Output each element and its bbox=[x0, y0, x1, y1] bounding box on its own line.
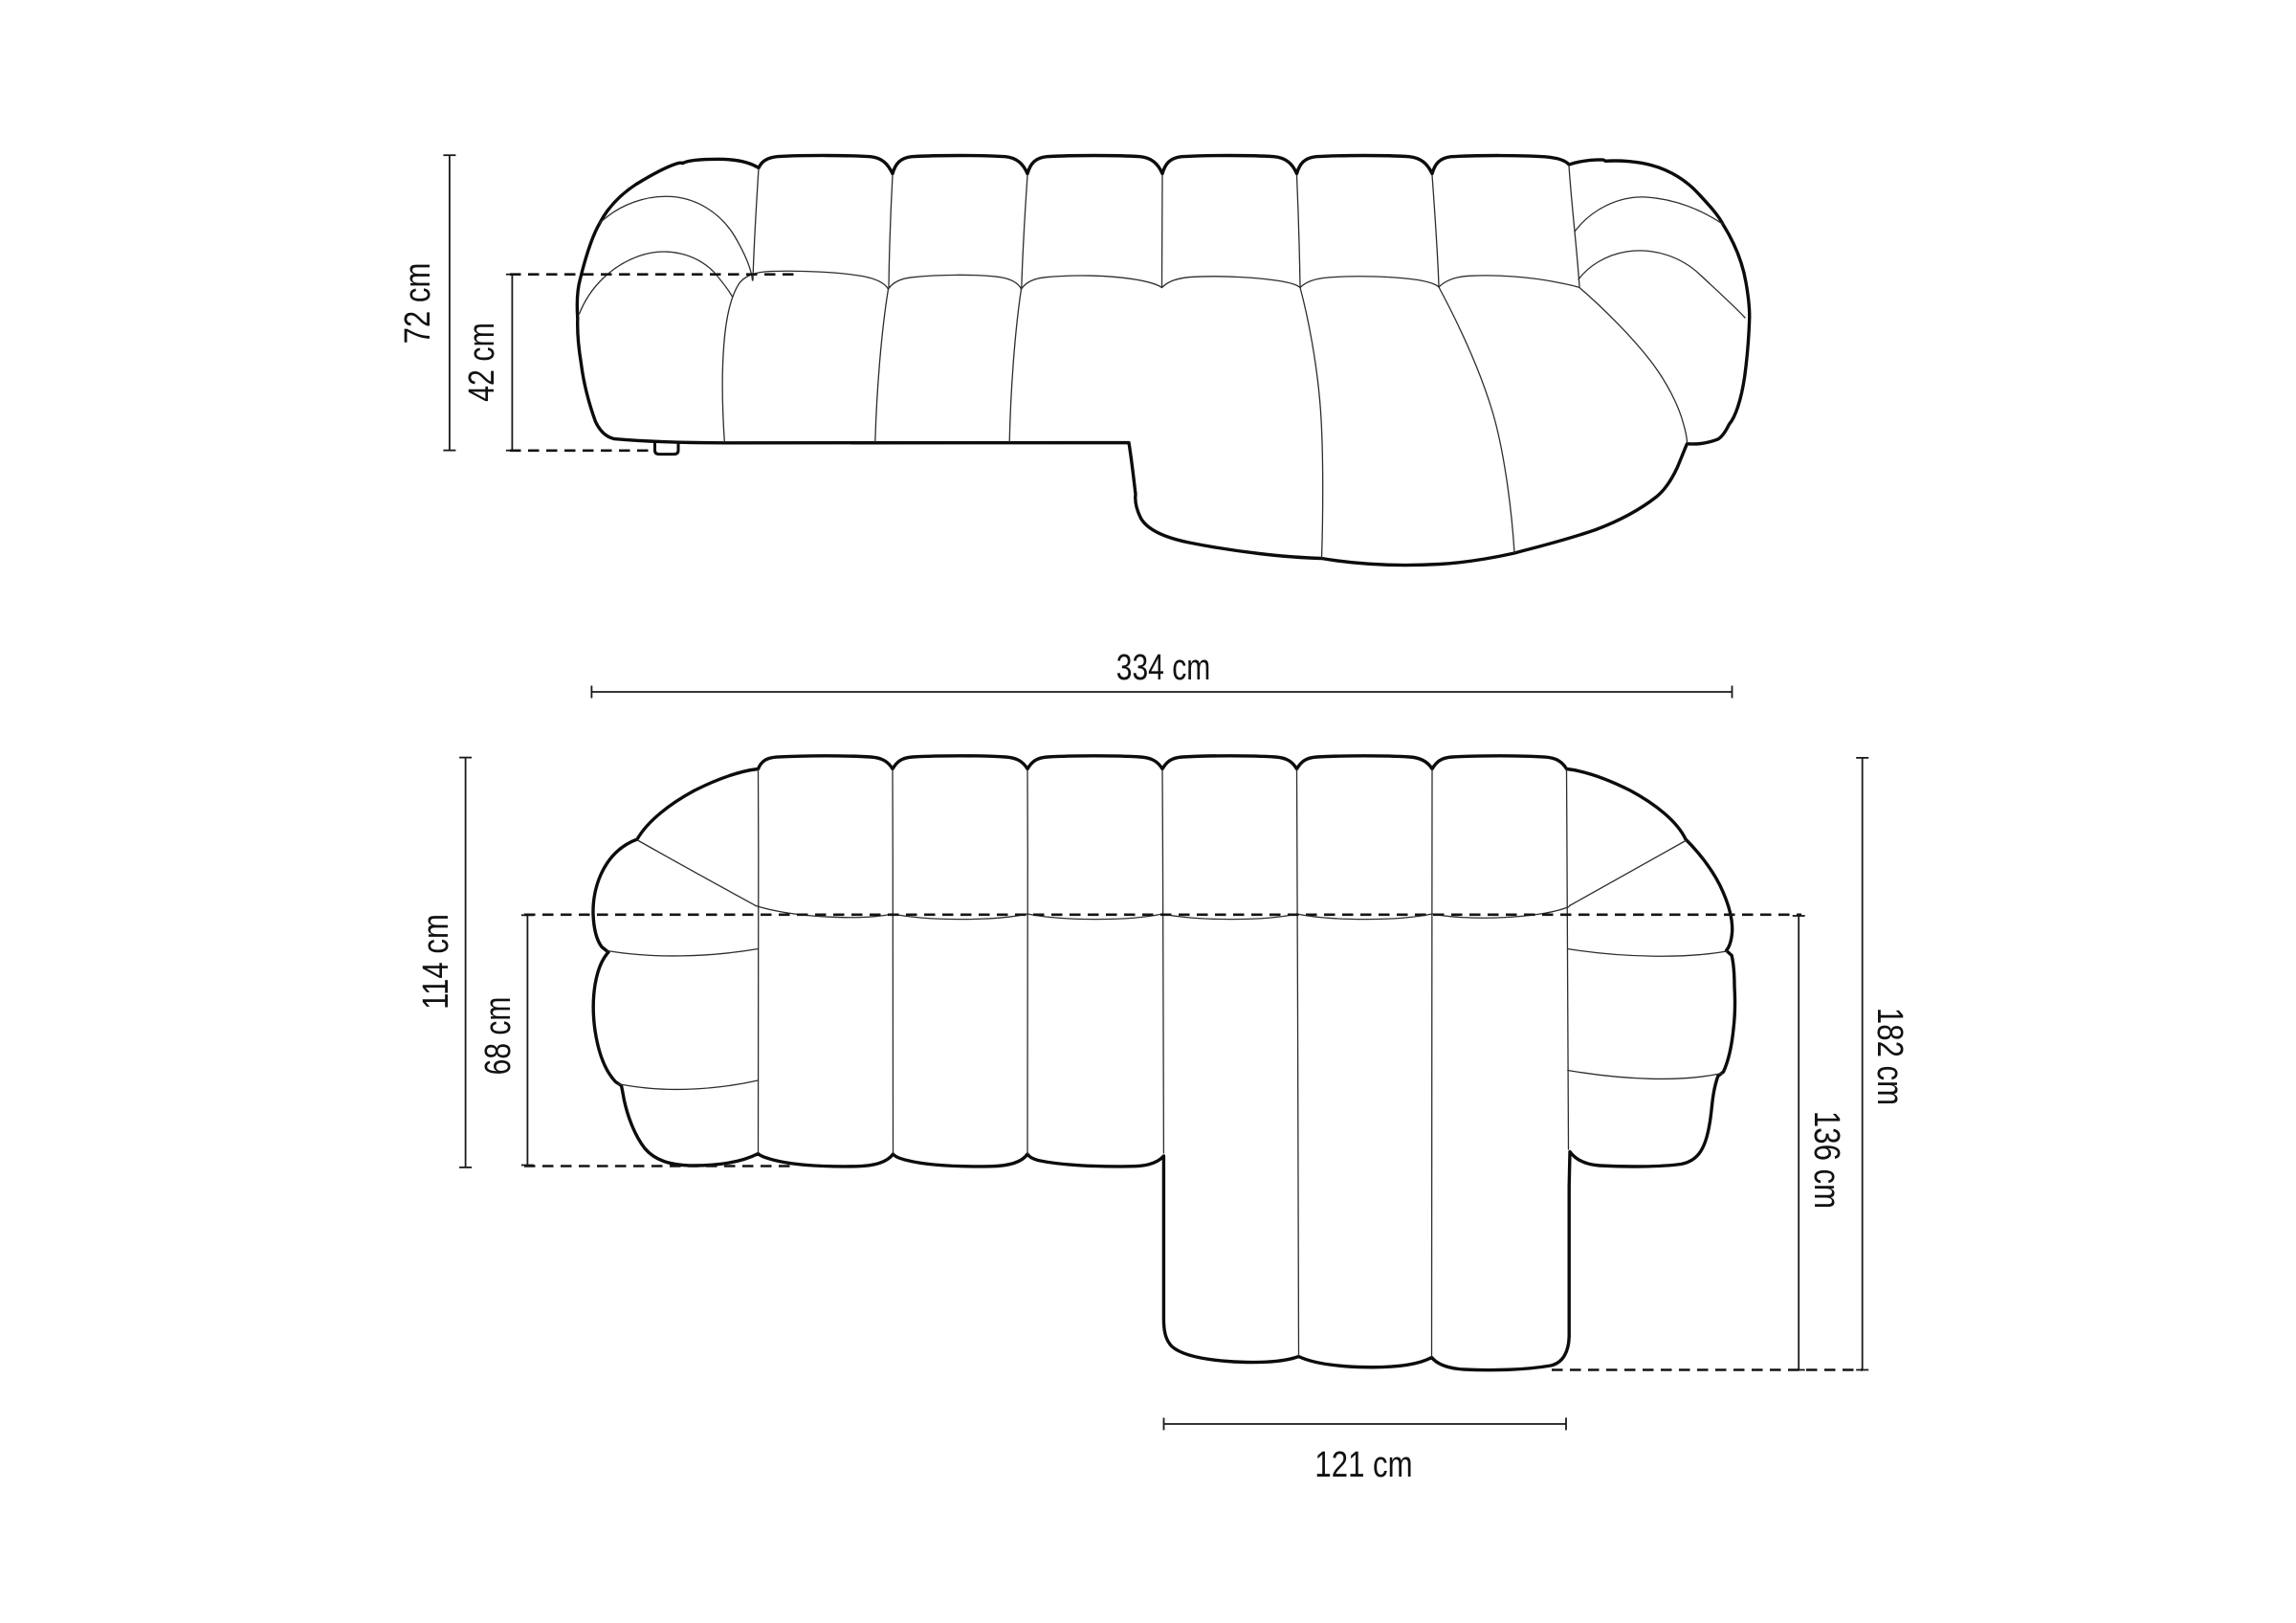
svg-text:136 cm: 136 cm bbox=[1806, 1111, 1846, 1209]
svg-text:121 cm: 121 cm bbox=[1314, 1445, 1412, 1485]
svg-text:42 cm: 42 cm bbox=[462, 322, 502, 402]
svg-text:72 cm: 72 cm bbox=[398, 263, 438, 345]
svg-text:68 cm: 68 cm bbox=[478, 997, 519, 1076]
svg-text:182 cm: 182 cm bbox=[1869, 1008, 1910, 1105]
svg-text:114 cm: 114 cm bbox=[416, 914, 456, 1010]
svg-text:334 cm: 334 cm bbox=[1116, 648, 1210, 688]
